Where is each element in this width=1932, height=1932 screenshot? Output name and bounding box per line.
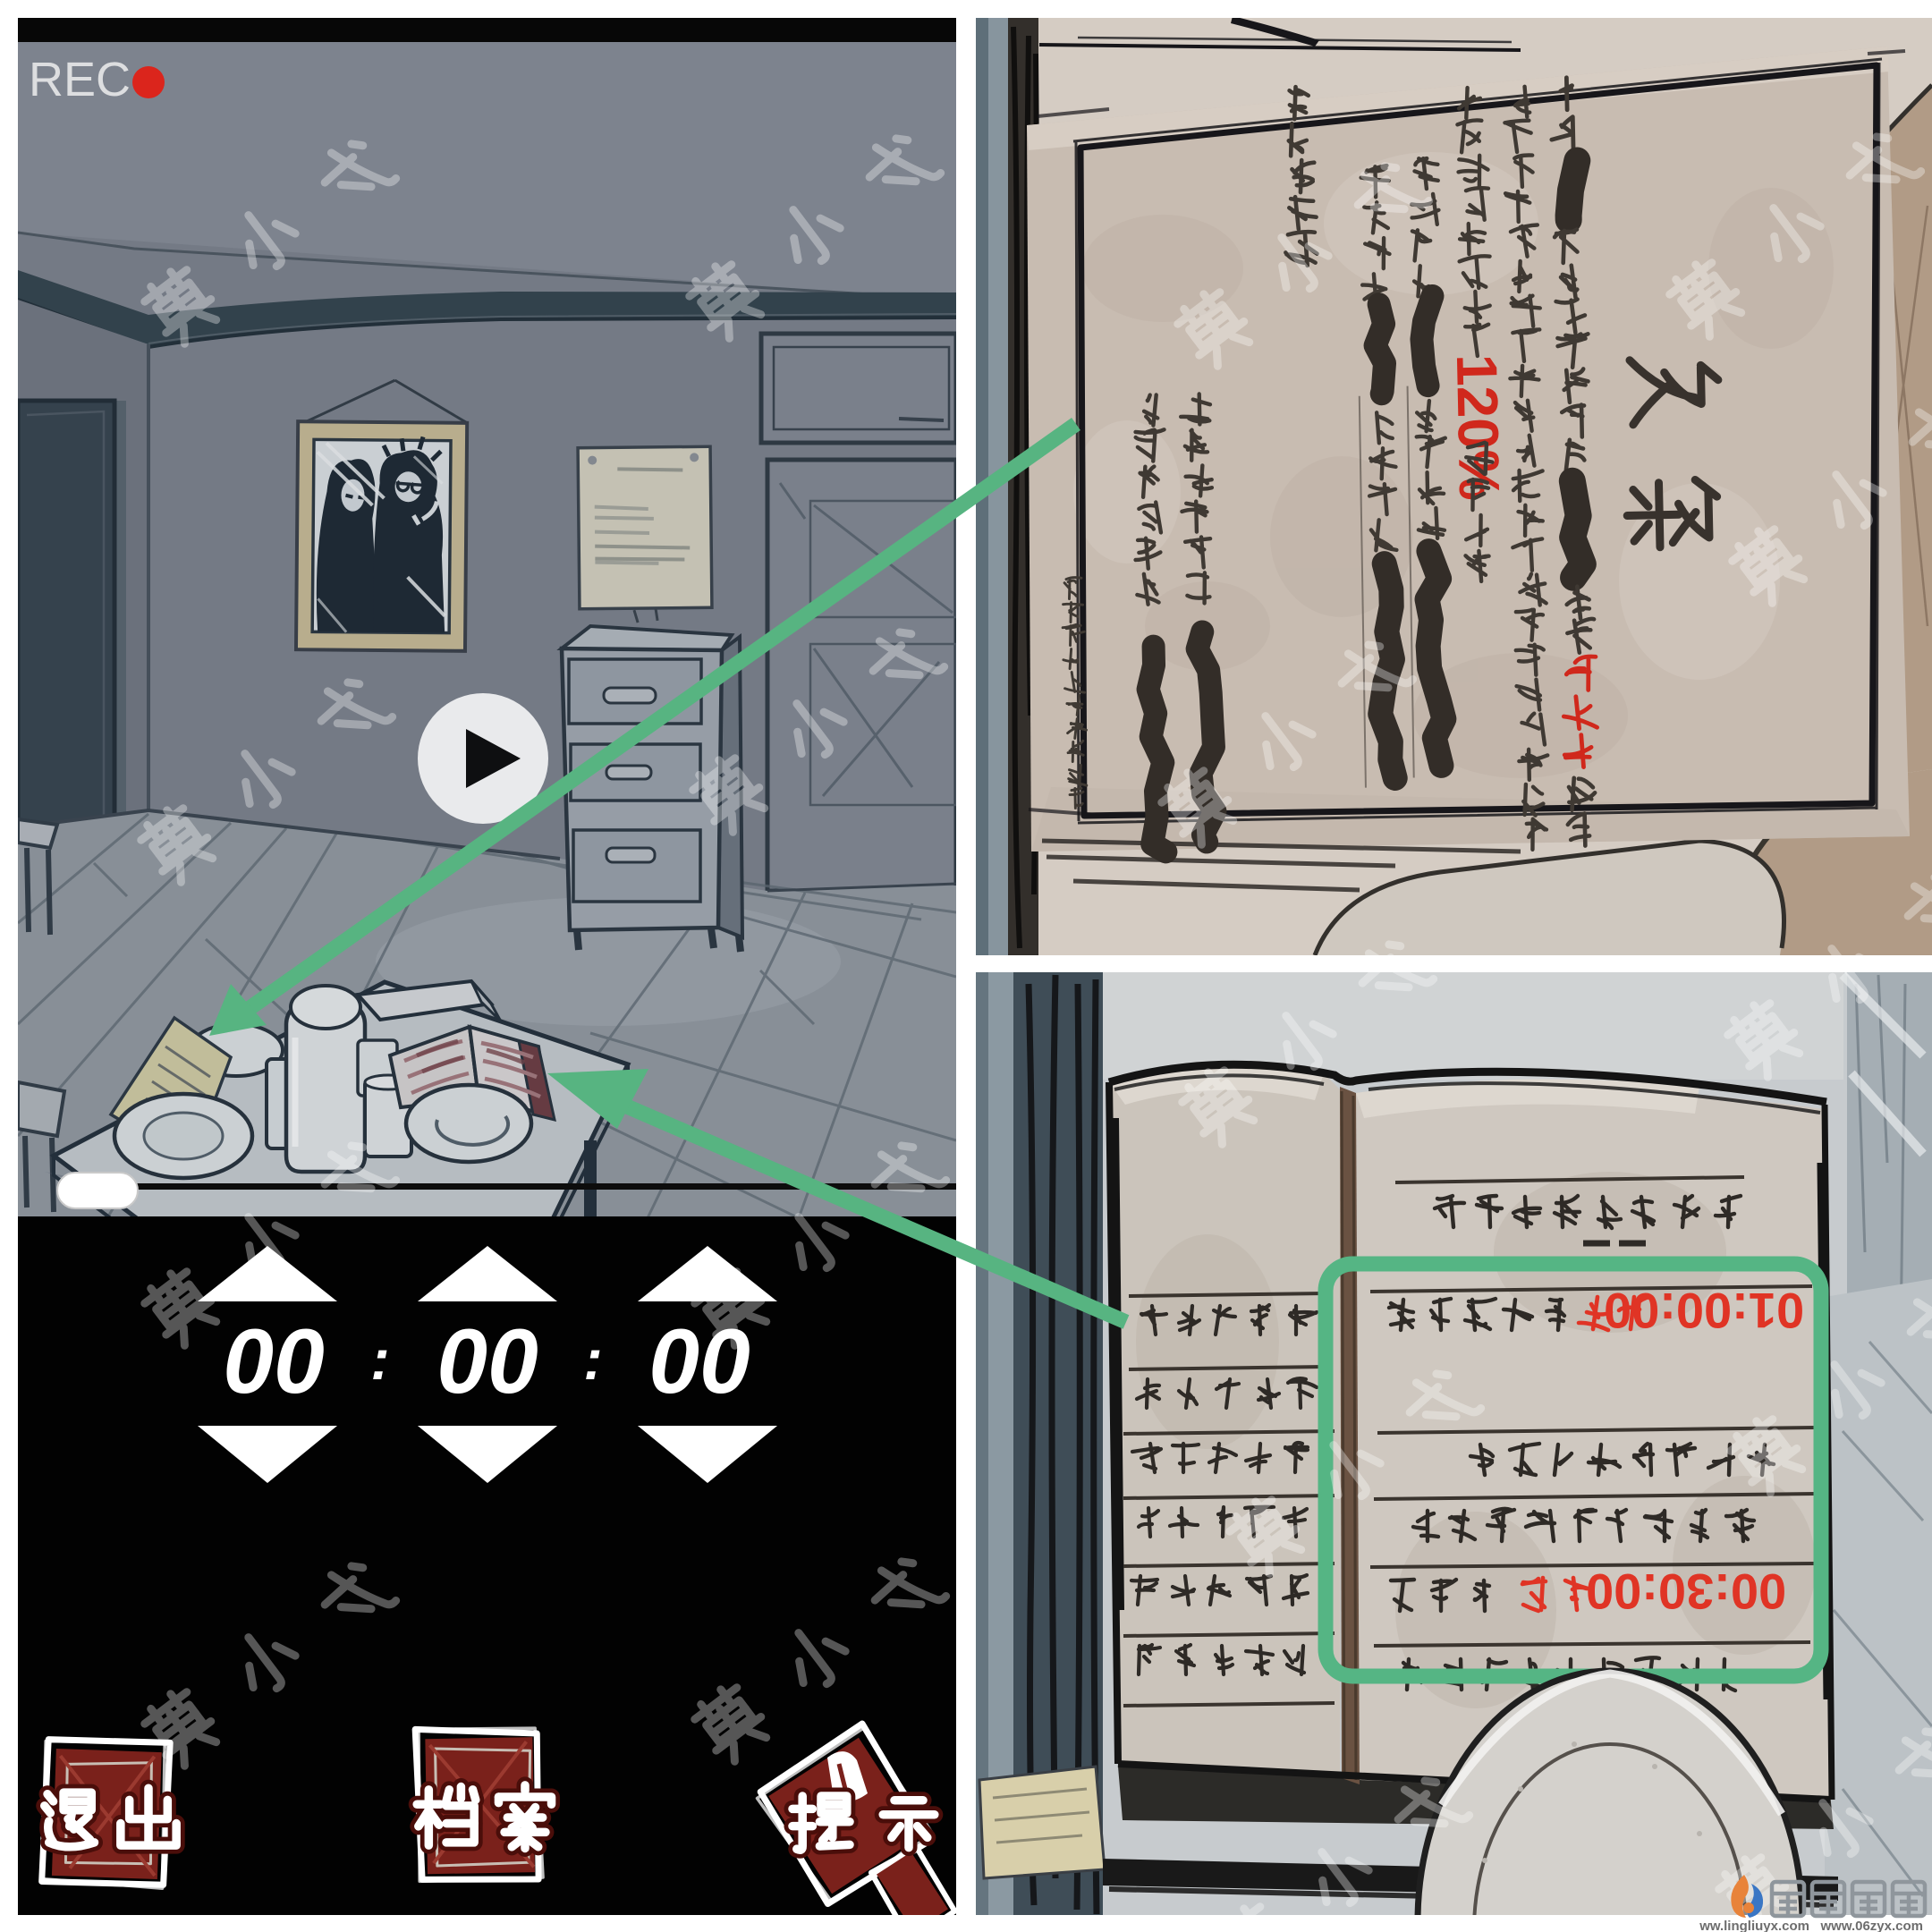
svg-text:www.lingliuyx.com www.06zyx.: www.lingliuyx.com www.06zyx.com	[1699, 1919, 1923, 1932]
